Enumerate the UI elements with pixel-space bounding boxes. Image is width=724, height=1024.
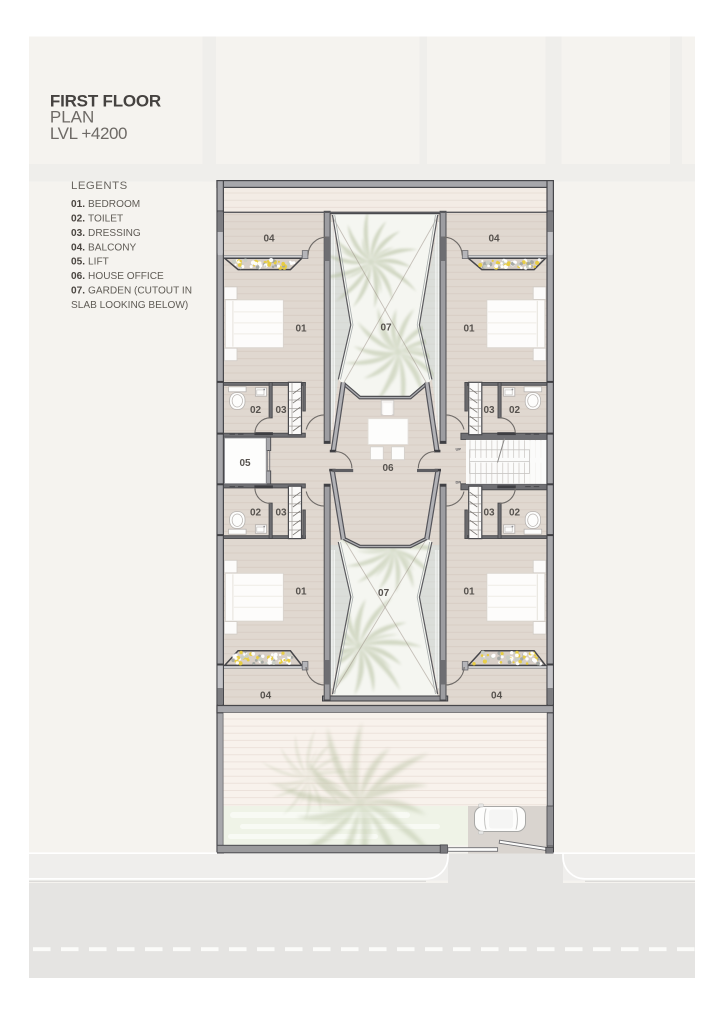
svg-text:03: 03 <box>275 508 287 519</box>
svg-text:03.DRESSING: 03.DRESSING <box>71 228 141 239</box>
svg-text:LVL +4200: LVL +4200 <box>50 124 127 143</box>
svg-text:07: 07 <box>378 588 390 599</box>
svg-text:02: 02 <box>250 405 262 416</box>
svg-text:07: 07 <box>380 323 392 334</box>
svg-text:01: 01 <box>463 587 475 598</box>
svg-text:06: 06 <box>382 463 394 474</box>
svg-text:03: 03 <box>483 508 495 519</box>
svg-text:01: 01 <box>295 587 307 598</box>
svg-text:05.LIFT: 05.LIFT <box>71 257 109 268</box>
svg-text:05: 05 <box>239 458 251 469</box>
svg-text:01: 01 <box>463 324 475 335</box>
svg-text:02: 02 <box>509 508 521 519</box>
svg-text:UP: UP <box>456 447 462 452</box>
svg-text:03: 03 <box>483 405 495 416</box>
svg-text:02.TOILET: 02.TOILET <box>71 214 123 225</box>
svg-text:01.BEDROOM: 01.BEDROOM <box>71 199 140 210</box>
svg-text:DN: DN <box>456 480 462 485</box>
svg-text:01: 01 <box>295 324 307 335</box>
svg-text:04: 04 <box>491 690 503 701</box>
svg-text:04: 04 <box>260 690 272 701</box>
svg-text:04: 04 <box>488 234 500 245</box>
svg-text:07.GARDEN (CUTOUT IN: 07.GARDEN (CUTOUT IN <box>71 286 192 297</box>
svg-text:LEGENTS: LEGENTS <box>71 180 128 192</box>
svg-text:SLAB LOOKING BELOW): SLAB LOOKING BELOW) <box>71 300 188 311</box>
svg-text:04.BALCONY: 04.BALCONY <box>71 242 137 253</box>
svg-text:06.HOUSE OFFICE: 06.HOUSE OFFICE <box>71 271 164 282</box>
svg-text:02: 02 <box>250 508 262 519</box>
svg-text:03: 03 <box>275 405 287 416</box>
svg-text:02: 02 <box>509 405 521 416</box>
svg-text:04: 04 <box>263 234 275 245</box>
